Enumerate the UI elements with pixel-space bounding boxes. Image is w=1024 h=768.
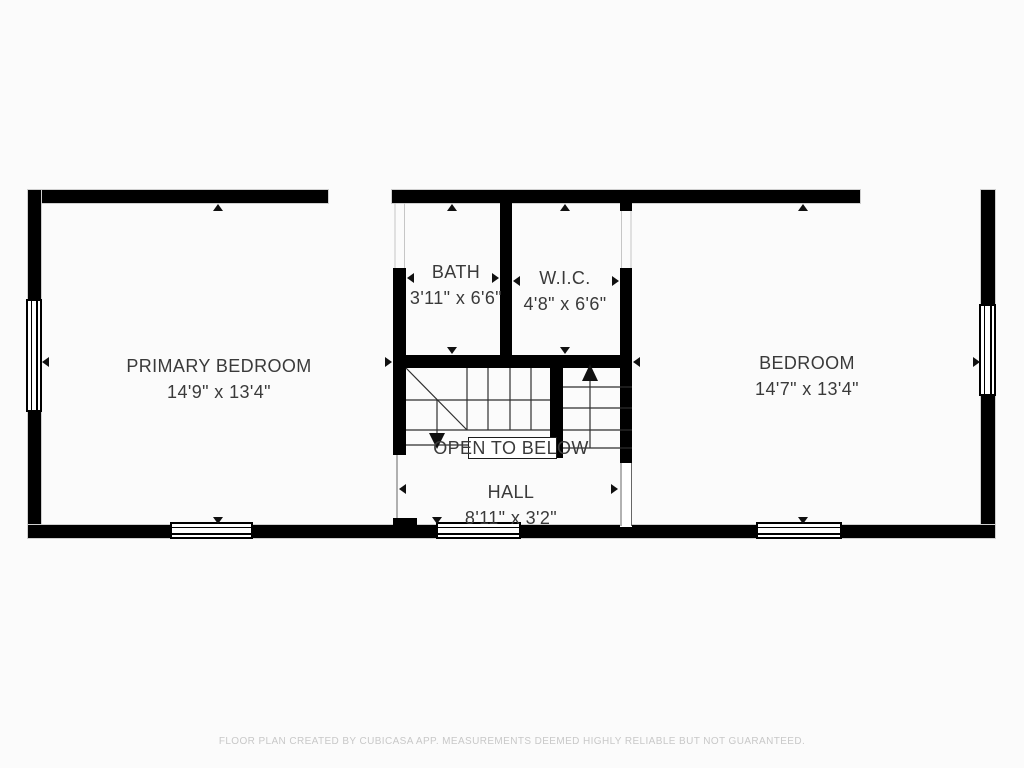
room-name: W.I.C. xyxy=(523,265,606,291)
room-label-bedroom: BEDROOM 14'7" x 13'4" xyxy=(755,350,859,402)
room-label-wic: W.I.C. 4'8" x 6'6" xyxy=(523,265,606,317)
wall-right-upper xyxy=(981,190,995,305)
open-to-below-label: OPEN TO BELOW xyxy=(433,435,589,461)
room-dimensions: 14'7" x 13'4" xyxy=(755,376,859,402)
room-dimensions: 4'8" x 6'6" xyxy=(523,291,606,317)
wall-top-main xyxy=(392,190,860,203)
floor-plan-canvas: PRIMARY BEDROOM 14'9" x 13'4" BATH 3'11"… xyxy=(0,0,1024,768)
staircase-left-run xyxy=(406,368,550,445)
footer-disclaimer: FLOOR PLAN CREATED BY CUBICASA APP. MEAS… xyxy=(0,736,1024,747)
room-label-bath: BATH 3'11" x 6'6" xyxy=(410,259,502,311)
wall-top-left xyxy=(28,190,328,203)
wall-left-upper xyxy=(28,190,41,300)
window-bottom-bedroom xyxy=(756,522,842,539)
window-left xyxy=(26,299,42,412)
wall-hall-bottom-stub xyxy=(393,518,417,528)
wall-wic-right-stub xyxy=(620,203,632,211)
wall-right-lower xyxy=(981,394,995,538)
room-dimensions: 14'9" x 13'4" xyxy=(126,379,311,405)
room-name: BATH xyxy=(410,259,502,285)
window-right xyxy=(979,304,996,396)
room-name: BEDROOM xyxy=(755,350,859,376)
room-dimensions: 3'11" x 6'6" xyxy=(410,285,502,311)
room-dimensions: 8'11" x 3'2" xyxy=(465,505,557,531)
room-name: HALL xyxy=(465,479,557,505)
room-label-hall: HALL 8'11" x 3'2" xyxy=(465,479,557,531)
window-bottom-primary xyxy=(170,522,253,539)
wall-left-lower xyxy=(28,411,41,538)
room-name: PRIMARY BEDROOM xyxy=(126,353,311,379)
hall-bedroom-opening xyxy=(620,463,632,527)
room-label-primary-bedroom: PRIMARY BEDROOM 14'9" x 13'4" xyxy=(126,353,311,405)
wall-under-bath-wic xyxy=(393,355,632,368)
